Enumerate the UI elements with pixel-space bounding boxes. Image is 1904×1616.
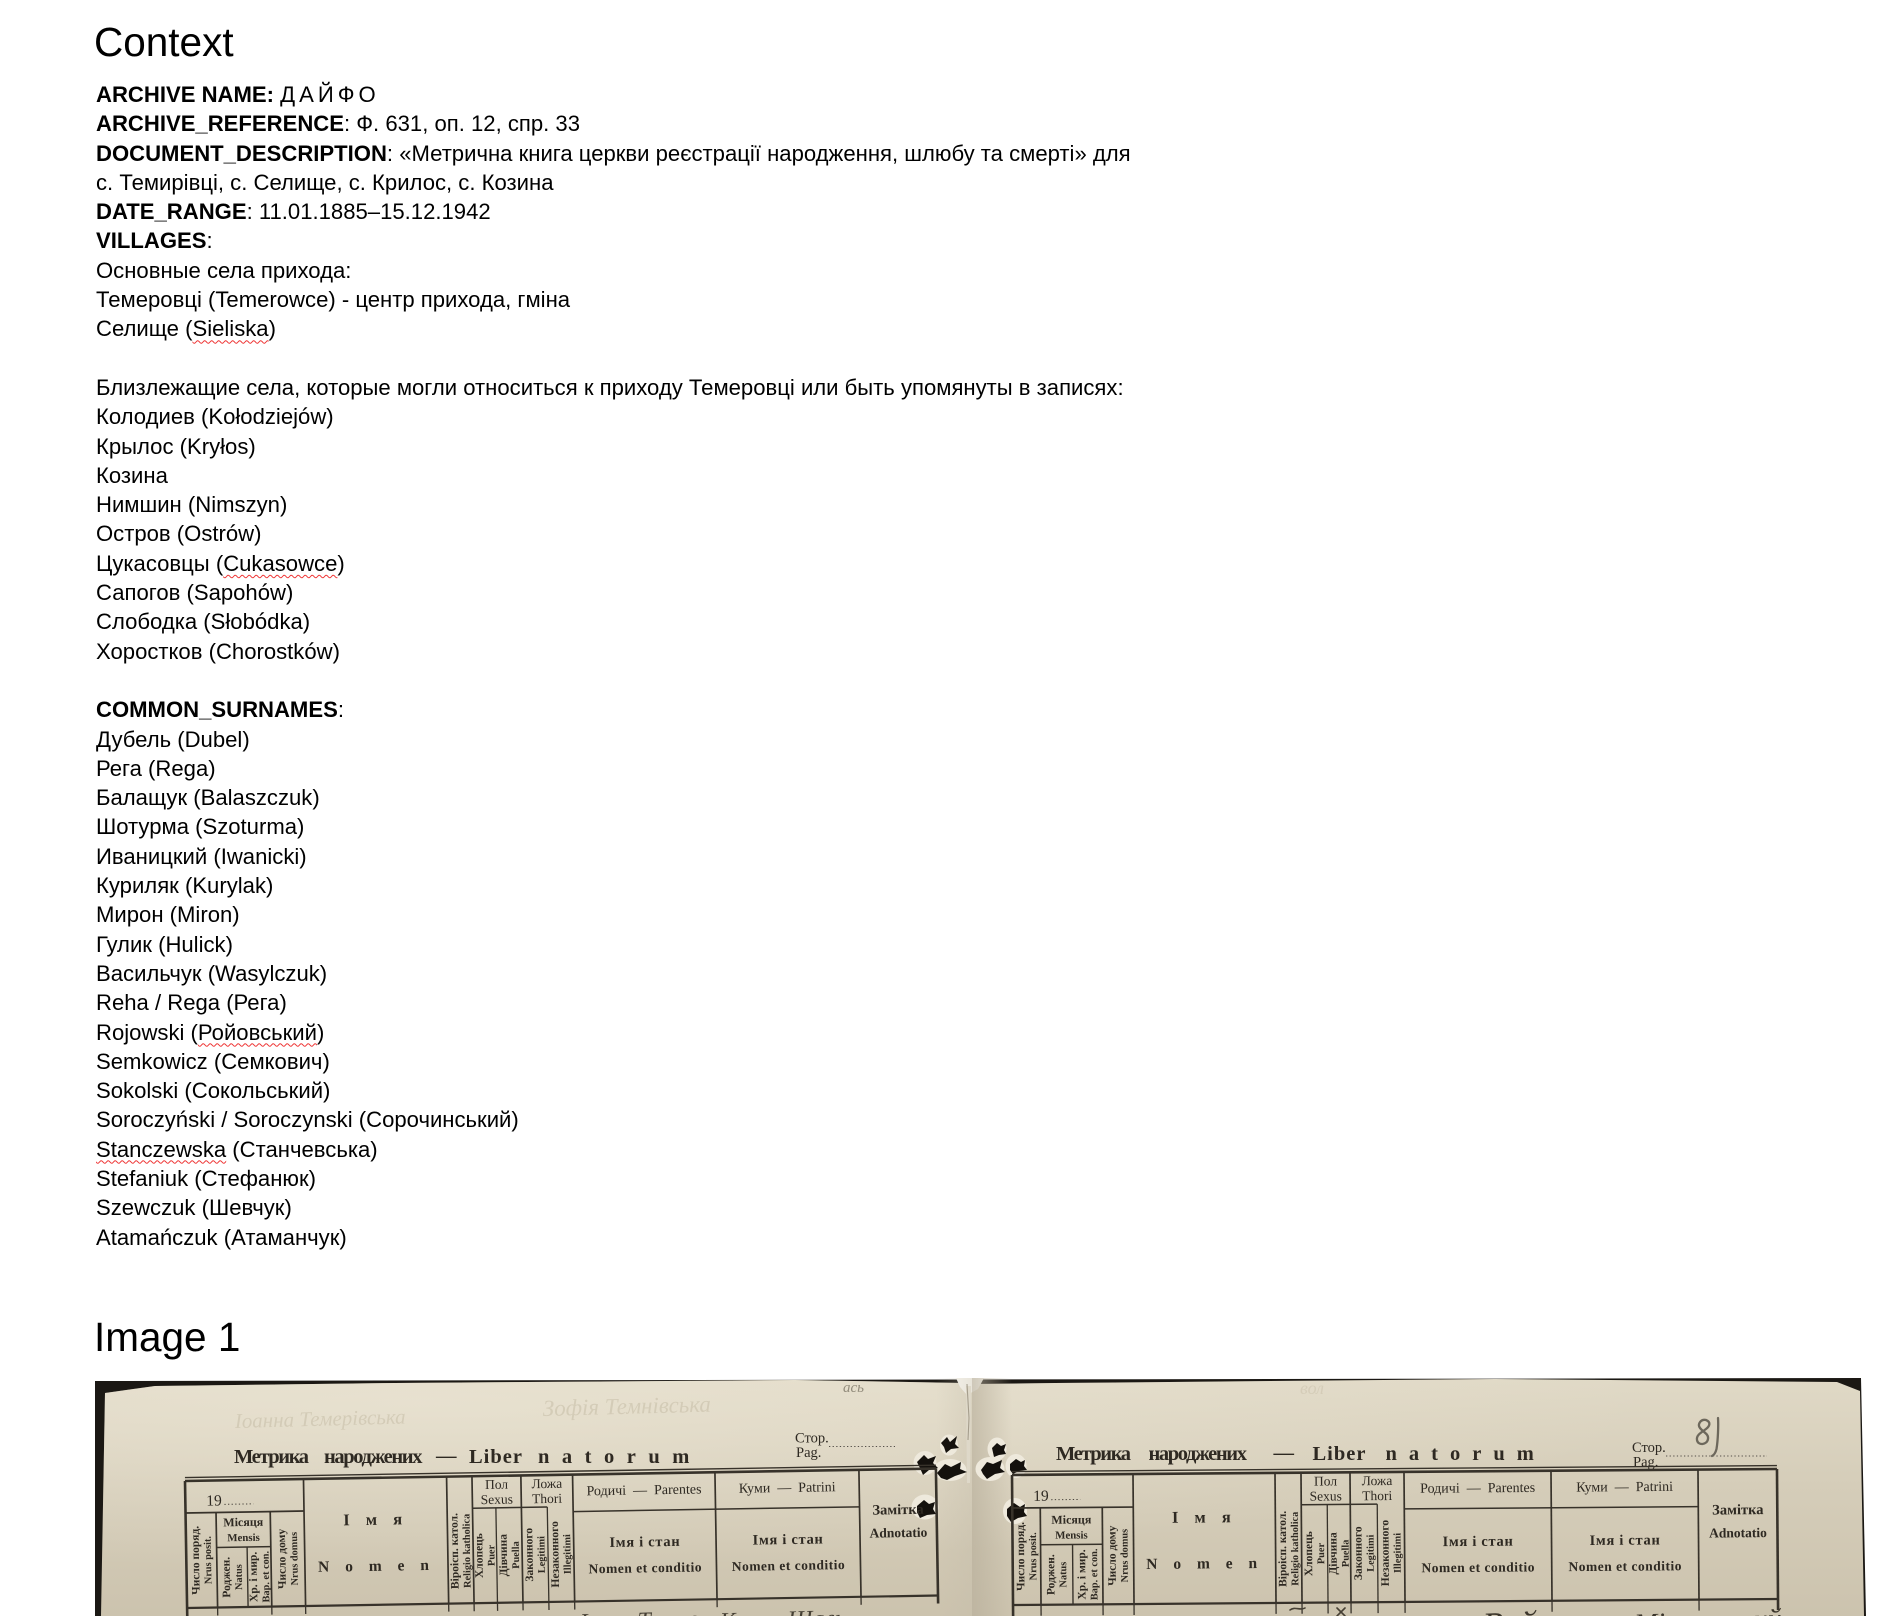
svg-text:Родичі — Parentes: Родичі — Parentes <box>1420 1481 1535 1497</box>
svg-text:Хлопець: Хлопець <box>473 1533 486 1578</box>
svg-text:Nrus posit.: Nrus posit. <box>203 1536 215 1585</box>
svg-text:Імя і стан: Імя і стан <box>1589 1532 1660 1549</box>
svg-text:Роджен.: Роджен. <box>1045 1554 1057 1595</box>
svg-text:—: — <box>435 1445 457 1467</box>
svg-text:Число дому: Число дому <box>1106 1525 1118 1586</box>
svg-text:Хр. і мир.: Хр. і мир. <box>248 1552 261 1603</box>
svg-text:Thori: Thori <box>532 1491 562 1506</box>
svg-text:19: 19 <box>206 1492 222 1509</box>
svg-text:І м я: І м я <box>1172 1507 1237 1527</box>
svg-text:Pag.: Pag. <box>1633 1455 1658 1471</box>
svg-text:Законного: Законного <box>1352 1526 1364 1580</box>
svg-text:Місяця: Місяця <box>1051 1512 1092 1526</box>
svg-text:Natus: Natus <box>234 1564 245 1590</box>
svg-text:Куми — Patrini: Куми — Patrini <box>739 1480 836 1497</box>
svg-text:Nrus posit.: Nrus posit. <box>1028 1532 1039 1581</box>
svg-text:Nomen et conditio: Nomen et conditio <box>1568 1558 1682 1574</box>
svg-text:Місяця: Місяця <box>223 1515 264 1530</box>
svg-text:Adnotatio: Adnotatio <box>1709 1525 1767 1540</box>
svg-text:Метрика: Метрика <box>1056 1443 1131 1465</box>
svg-text:Пол: Пол <box>485 1477 509 1492</box>
svg-text:Bap. et con.: Bap. et con. <box>1089 1548 1100 1600</box>
svg-text:Число поряд.: Число поряд. <box>1015 1522 1028 1591</box>
svg-text:Nomen et conditio: Nomen et conditio <box>732 1557 846 1574</box>
svg-text:Puer: Puer <box>486 1544 497 1566</box>
svg-text:Законного: Законного <box>523 1528 536 1582</box>
svg-text:Nrus domus: Nrus domus <box>289 1532 301 1586</box>
svg-text:Імя і стан: Імя і стан <box>752 1531 823 1548</box>
svg-text:Дівчина: Дівчина <box>1327 1532 1339 1575</box>
svg-text:Thori: Thori <box>1362 1488 1392 1503</box>
svg-text:Legitimi: Legitimi <box>1365 1534 1376 1571</box>
svg-text:Illegitimi: Illegitimi <box>562 1534 574 1574</box>
svg-text:Вай: Вай <box>1482 1605 1538 1616</box>
svg-text:Adnotatio: Adnotatio <box>869 1525 927 1541</box>
svg-text:Замітка: Замітка <box>872 1502 924 1519</box>
svg-text:вол: вол <box>1300 1378 1324 1398</box>
svg-text:народжених: народжених <box>324 1446 423 1468</box>
svg-text:Religio katholica: Religio katholica <box>1290 1512 1302 1586</box>
svg-text:Метрика: Метрика <box>234 1446 309 1468</box>
svg-text:Число поряд.: Число поряд. <box>189 1526 202 1595</box>
svg-text:natorum: natorum <box>538 1446 702 1468</box>
svg-text:Імя і стан: Імя і стан <box>1442 1534 1513 1551</box>
svg-text:Незаконного: Незаконного <box>1379 1520 1392 1587</box>
svg-text:Незаконного: Незаконного <box>549 1521 562 1588</box>
svg-text:Illegitimi: Illegitimi <box>1392 1533 1403 1573</box>
svg-text:Зофія Темнівська: Зофія Темнівська <box>542 1392 711 1421</box>
svg-text:N o m e n: N o m e n <box>1146 1555 1263 1573</box>
svg-text:Ложа: Ложа <box>531 1476 562 1492</box>
svg-text:Puella: Puella <box>511 1541 522 1569</box>
svg-text:ась: ась <box>843 1380 864 1396</box>
svg-text:Родичі — Parentes: Родичі — Parentes <box>586 1482 701 1499</box>
svg-text:народжених: народжених <box>1149 1443 1248 1465</box>
svg-text:Religio katholica: Religio katholica <box>461 1514 473 1588</box>
svg-text:Nomen et conditio: Nomen et conditio <box>1421 1559 1535 1575</box>
svg-text:Puer: Puer <box>1316 1543 1327 1565</box>
svg-text:Liber: Liber <box>1313 1443 1367 1465</box>
svg-text:Sexus: Sexus <box>1309 1488 1341 1503</box>
svg-text:Куми — Patrini: Куми — Patrini <box>1576 1480 1673 1496</box>
svg-text:Дівчина: Дівчина <box>498 1534 511 1577</box>
svg-text:Mensis: Mensis <box>1055 1529 1087 1541</box>
svg-text:Mensis: Mensis <box>227 1532 260 1545</box>
svg-text:І м я: І м я <box>343 1509 408 1529</box>
svg-text:Імя і стан: Імя і стан <box>609 1534 680 1551</box>
svg-text:19: 19 <box>1033 1488 1049 1505</box>
svg-text:Роджен.: Роджен. <box>221 1557 234 1598</box>
svg-text:Puella: Puella <box>1341 1540 1352 1568</box>
svg-text:Sexus: Sexus <box>481 1492 514 1508</box>
svg-text:Віроісп. катол.: Віроісп. катол. <box>1277 1511 1290 1587</box>
svg-text:Замітка: Замітка <box>1712 1502 1764 1518</box>
svg-text:Pag.: Pag. <box>796 1445 821 1461</box>
svg-text:—: — <box>1273 1442 1295 1464</box>
svg-text:Bap. et con.: Bap. et con. <box>261 1550 273 1602</box>
svg-text:Хлопець: Хлопець <box>1303 1531 1315 1576</box>
svg-text:Ложа: Ложа <box>1362 1473 1393 1488</box>
svg-text:Nrus domus: Nrus domus <box>1119 1529 1130 1583</box>
svg-text:Legitimi: Legitimi <box>536 1536 548 1573</box>
svg-text:Пол: Пол <box>1314 1473 1337 1488</box>
svg-text:Віроісп. катол.: Віроісп. катол. <box>448 1513 461 1589</box>
svg-text:N o m e n: N o m e n <box>318 1557 435 1576</box>
svg-text:Natus: Natus <box>1058 1562 1069 1588</box>
svg-text:Іоанна Темерівська: Іоанна Темерівська <box>233 1405 405 1433</box>
svg-text:Число дому: Число дому <box>276 1528 289 1589</box>
svg-text:Nomen et conditio: Nomen et conditio <box>588 1559 702 1576</box>
svg-text:natorum: natorum <box>1386 1443 1546 1465</box>
svg-text:Хр. і мир.: Хр. і мир. <box>1076 1549 1088 1599</box>
svg-text:Liber: Liber <box>469 1446 523 1468</box>
